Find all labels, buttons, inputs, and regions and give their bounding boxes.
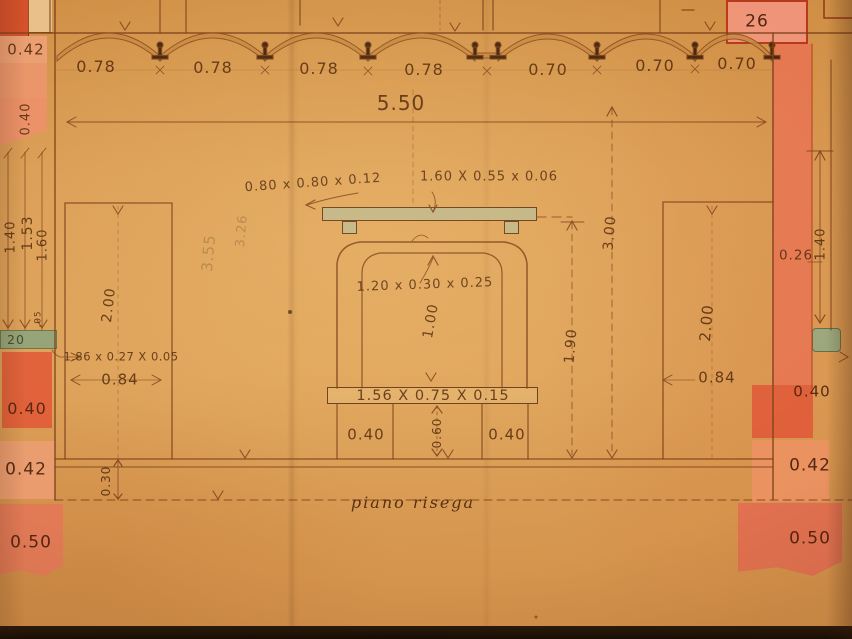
dim-overall-width: 5.50 xyxy=(377,93,426,113)
dim-left-140: 1.40 xyxy=(5,221,18,254)
dim-bay-5: 0.70 xyxy=(528,62,568,78)
dim-base-mid: 0.60 xyxy=(431,418,443,449)
dim-left-040-rot: 0.40 xyxy=(20,103,33,136)
dim-left-042-top: 0.42 xyxy=(7,43,44,58)
note-hearth: 1.56 X 0.75 X 0.15 xyxy=(356,389,509,404)
dim-right-040: 0.40 xyxy=(793,385,830,400)
floor-level-label: piano risega xyxy=(351,495,475,511)
label-ledge-20: 20 xyxy=(7,334,25,347)
dim-right-042: 0.42 xyxy=(789,458,831,475)
dim-left-153: 1.53 xyxy=(21,215,35,250)
dim-height-300: 3.00 xyxy=(601,215,618,251)
dim-left-160: 1.60 xyxy=(37,229,50,262)
dim-bay-6: 0.70 xyxy=(635,58,675,74)
dim-left-005: .05 xyxy=(35,310,44,327)
dim-right-panel-200: 2.00 xyxy=(698,304,716,343)
dim-left-040: 0.40 xyxy=(7,401,47,417)
label-corner-26: 26 xyxy=(745,14,769,31)
ghost-dim-355: 3.55 xyxy=(200,234,218,273)
dim-left-030: 0.30 xyxy=(100,466,112,497)
dim-right-140: 1.40 xyxy=(815,228,828,261)
dim-left-panel-084: 0.84 xyxy=(101,373,138,388)
dim-right-050: 0.50 xyxy=(789,531,831,548)
dim-right-026: 0.26 xyxy=(779,249,813,263)
note-mantel-shelf: 1.60 X 0.55 x 0.06 xyxy=(420,171,558,184)
dim-left-042: 0.42 xyxy=(5,462,47,479)
dim-left-panel-200: 2.00 xyxy=(100,287,118,324)
dim-bay-1: 0.78 xyxy=(76,59,116,75)
dim-bay-2: 0.78 xyxy=(193,60,233,76)
dim-right-panel-084: 0.84 xyxy=(698,371,735,386)
dim-left-050: 0.50 xyxy=(10,535,52,552)
scan-edge-bottom xyxy=(0,626,852,639)
dim-base-left: 0.40 xyxy=(347,428,384,443)
dim-bay-4: 0.78 xyxy=(404,62,444,78)
dim-height-190: 1.90 xyxy=(562,328,579,364)
dim-base-right: 0.40 xyxy=(488,428,525,443)
note-strip-left: 1.86 x 0.27 X 0.05 xyxy=(63,351,178,363)
scanned-architectural-drawing: 0.78 0.78 0.78 0.78 0.70 0.70 0.70 5.50 … xyxy=(0,0,852,639)
dim-bay-7: 0.70 xyxy=(717,56,757,72)
dim-bay-3: 0.78 xyxy=(299,61,339,77)
ghost-dim-326: 3.26 xyxy=(234,214,250,248)
